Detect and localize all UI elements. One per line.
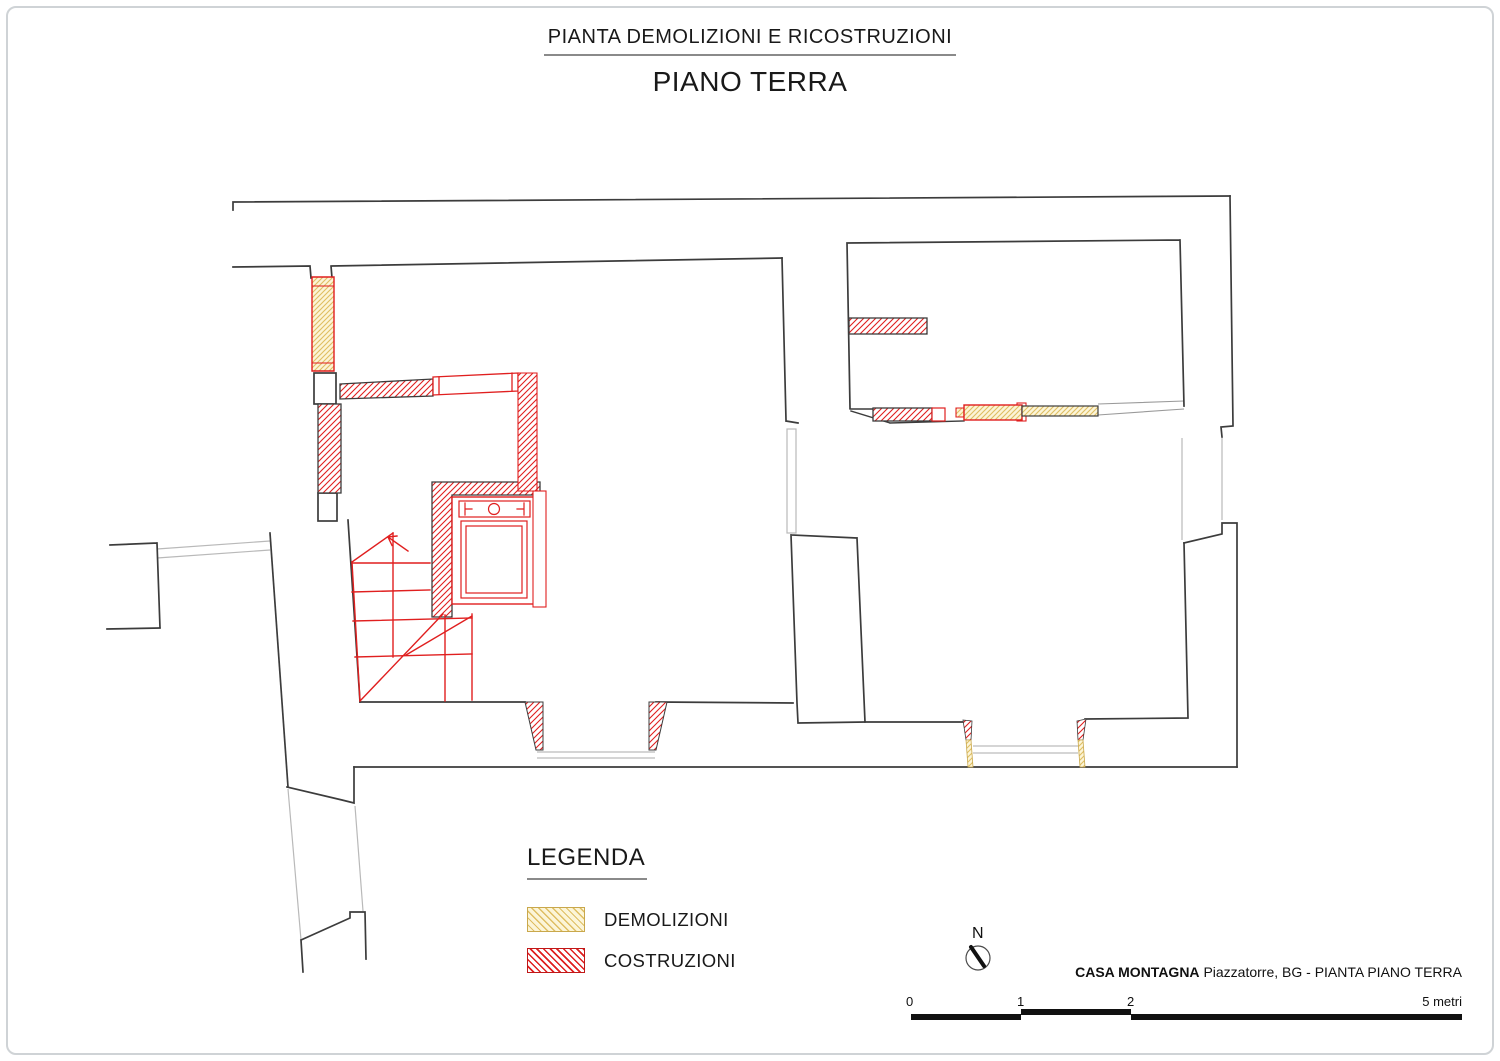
window-jamb — [649, 702, 667, 750]
legend-item-costruzioni: COSTRUZIONI — [527, 948, 736, 973]
north-arrow-icon: N — [948, 922, 1018, 982]
legend-heading: LEGENDA — [527, 844, 647, 880]
demolition-door-pocket — [1022, 406, 1098, 416]
demolition-elements — [312, 277, 1098, 767]
construction-hatch-swatch-icon — [527, 948, 585, 973]
floor-plan-drawing — [0, 0, 1500, 1061]
demolition-hatch-swatch-icon — [527, 907, 585, 932]
window-jamb — [963, 720, 972, 740]
legend-item-label: COSTRUZIONI — [604, 950, 736, 972]
compass-needle — [971, 947, 984, 966]
north-label: N — [972, 925, 984, 942]
demolition-door-leaf — [964, 405, 1022, 420]
window-jamb — [1077, 719, 1086, 740]
stair-direction-arrow — [388, 536, 408, 551]
window-jamb — [525, 702, 543, 750]
legend-item-label: DEMOLIZIONI — [604, 909, 729, 931]
elevator-fixture — [452, 491, 546, 607]
drawing-sheet: PIANTA DEMOLIZIONI E RICOSTRUZIONI PIANO… — [0, 0, 1500, 1061]
title-block: CASA MONTAGNA Piazzatorre, BG - PIANTA P… — [1075, 964, 1462, 980]
project-name: CASA MONTAGNA — [1075, 964, 1199, 980]
demolition-wall-strip — [312, 277, 334, 371]
project-subtitle: Piazzatorre, BG - PIANTA PIANO TERRA — [1203, 964, 1462, 980]
new-window-frame — [433, 373, 518, 395]
construction-west-wall — [318, 404, 341, 493]
construction-north-wall — [340, 379, 433, 399]
construction-east-wall — [518, 373, 537, 491]
construction-stub-south — [873, 408, 932, 421]
construction-stub-north — [849, 318, 927, 334]
legend-item-demolizioni: DEMOLIZIONI — [527, 907, 736, 932]
legend: LEGENDA DEMOLIZIONI COSTRUZIONI — [527, 844, 736, 973]
